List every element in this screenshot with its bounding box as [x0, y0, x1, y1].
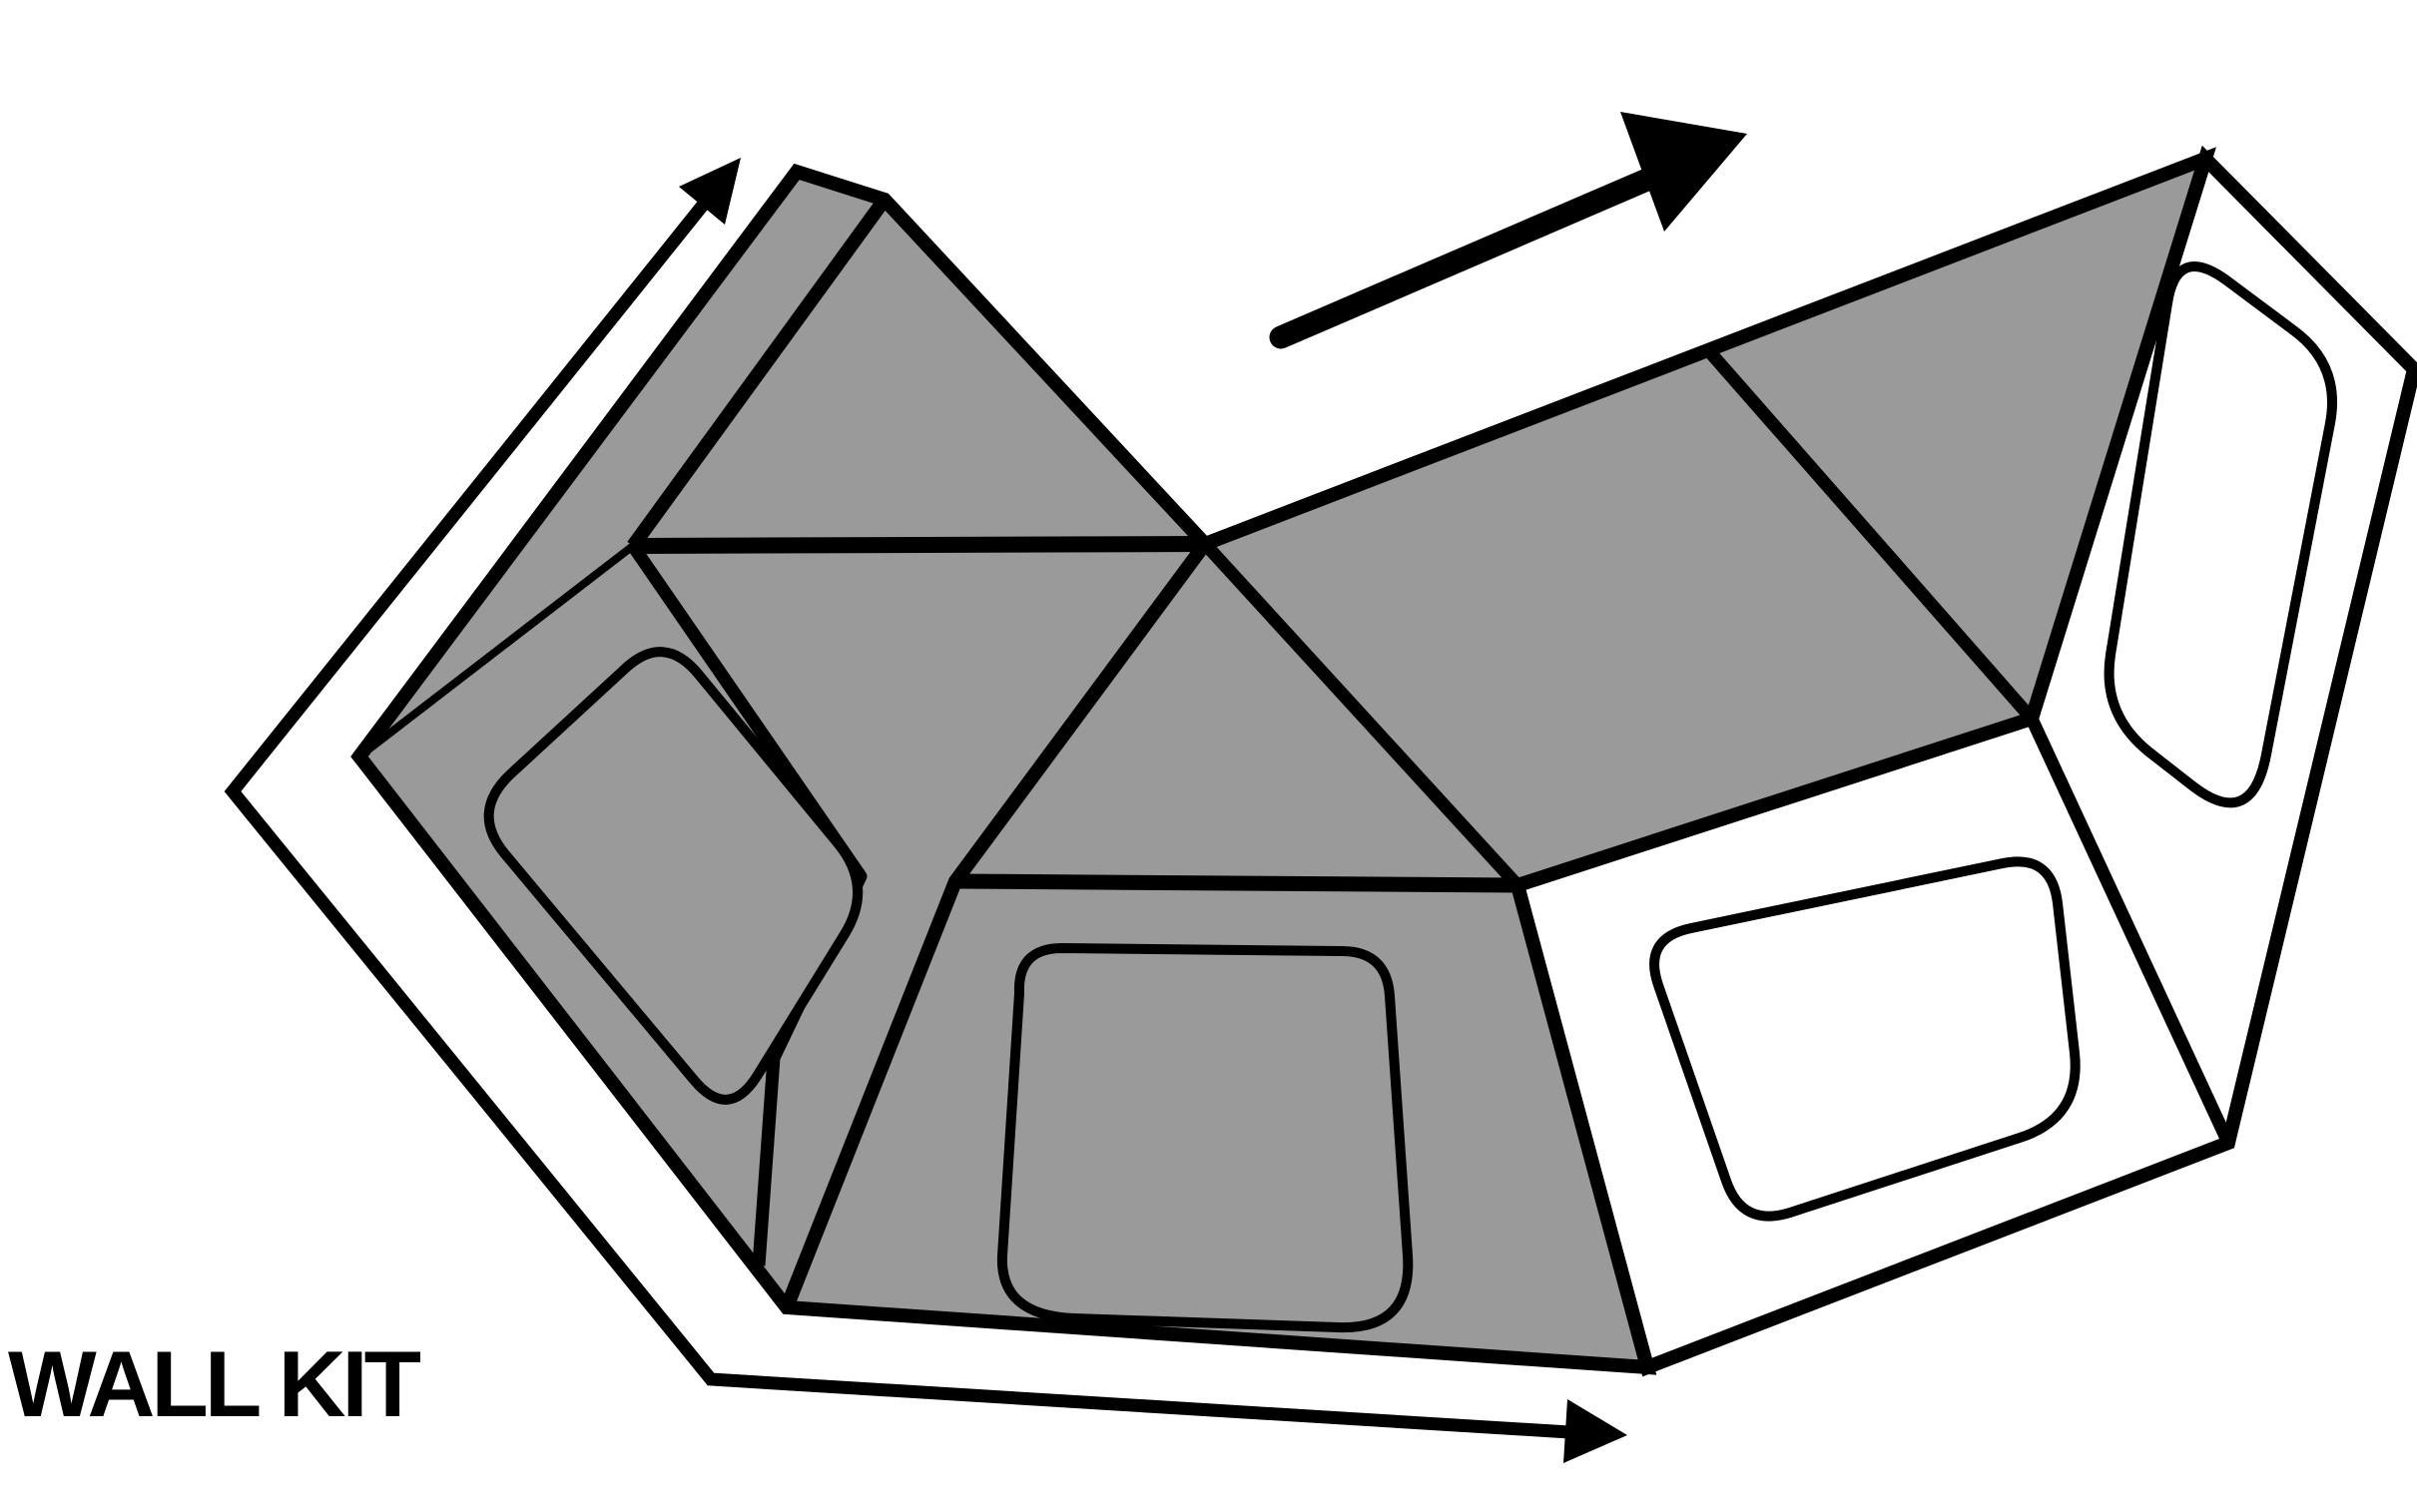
arrow-shaft — [1281, 179, 1649, 337]
seam-middle-panel-top — [955, 881, 1517, 885]
seam-horizontal-ridge — [633, 544, 1205, 546]
top-center-direction-arrow — [1281, 112, 1747, 337]
middle-panel-window — [1002, 948, 1408, 1327]
kit-caption: WALL KIT OUTER 3 — [8, 1157, 417, 1512]
kit-caption-line1: WALL KIT — [8, 1338, 417, 1429]
right-arrowhead-icon — [1563, 1399, 1627, 1463]
wall-kit-outer-3-page: WALL KIT OUTER 3 — [0, 0, 2417, 1512]
